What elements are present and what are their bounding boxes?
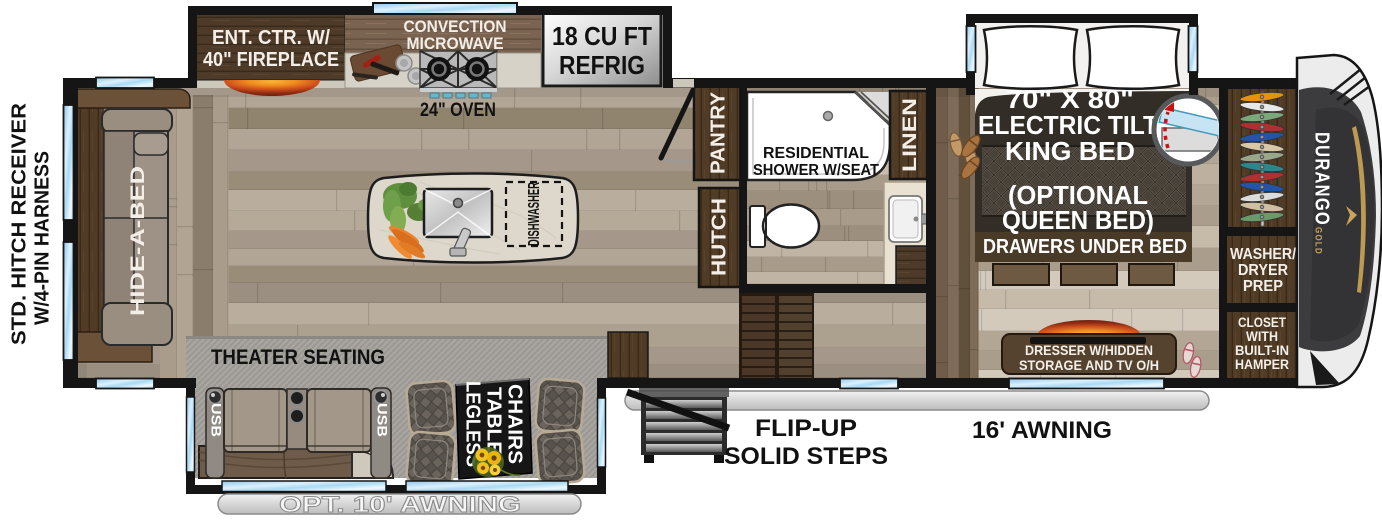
svg-text:STORAGE AND TV O/H: STORAGE AND TV O/H xyxy=(1019,357,1159,373)
svg-text:HIDE-A-BED: HIDE-A-BED xyxy=(128,166,149,316)
svg-text:DURANGO: DURANGO xyxy=(1311,132,1333,226)
svg-text:WASHER/: WASHER/ xyxy=(1230,246,1297,263)
svg-text:PANTRY: PANTRY xyxy=(707,91,729,174)
svg-text:W/4-PIN HARNESS: W/4-PIN HARNESS xyxy=(30,151,53,325)
svg-text:HUTCH: HUTCH xyxy=(708,198,730,276)
svg-text:FLIP-UP: FLIP-UP xyxy=(755,415,857,442)
svg-text:24" OVEN: 24" OVEN xyxy=(420,100,496,121)
svg-text:DRYER: DRYER xyxy=(1238,262,1288,279)
svg-text:DISHWASHER: DISHWASHER xyxy=(526,182,543,246)
svg-text:THEATER SEATING: THEATER SEATING xyxy=(211,346,385,369)
svg-text:RESIDENTIAL: RESIDENTIAL xyxy=(763,145,869,162)
svg-text:MICROWAVE: MICROWAVE xyxy=(407,34,504,53)
svg-text:SHOWER W/SEAT: SHOWER W/SEAT xyxy=(753,162,879,179)
svg-text:BUILT-IN: BUILT-IN xyxy=(1235,343,1289,358)
svg-text:LINEN: LINEN xyxy=(900,98,921,172)
svg-text:PREP: PREP xyxy=(1243,278,1283,295)
svg-text:SOLID STEPS: SOLID STEPS xyxy=(724,443,888,470)
svg-text:GOLD: GOLD xyxy=(1312,227,1323,255)
svg-text:CLOSET: CLOSET xyxy=(1238,315,1287,330)
svg-text:DRAWERS UNDER BED: DRAWERS UNDER BED xyxy=(983,236,1187,258)
svg-text:CHAIRS: CHAIRS xyxy=(504,384,526,464)
svg-text:HAMPER: HAMPER xyxy=(1235,357,1289,372)
svg-text:OPT. 10' AWNING: OPT. 10' AWNING xyxy=(279,492,521,517)
svg-text:WITH: WITH xyxy=(1246,329,1278,344)
svg-text:DRESSER W/HIDDEN: DRESSER W/HIDDEN xyxy=(1025,342,1153,358)
svg-text:16' AWNING: 16' AWNING xyxy=(972,417,1112,444)
svg-text:ENT. CTR. W/: ENT. CTR. W/ xyxy=(212,27,330,49)
svg-text:USB: USB xyxy=(374,403,390,437)
svg-text:QUEEN BED): QUEEN BED) xyxy=(1002,205,1154,235)
svg-text:STD. HITCH RECEIVER: STD. HITCH RECEIVER xyxy=(7,103,30,345)
svg-text:REFRIG: REFRIG xyxy=(559,50,645,80)
svg-text:40" FIREPLACE: 40" FIREPLACE xyxy=(203,49,339,71)
svg-text:USB: USB xyxy=(208,403,224,437)
svg-text:KING BED: KING BED xyxy=(1005,136,1135,166)
svg-text:18 CU FT: 18 CU FT xyxy=(552,21,652,51)
